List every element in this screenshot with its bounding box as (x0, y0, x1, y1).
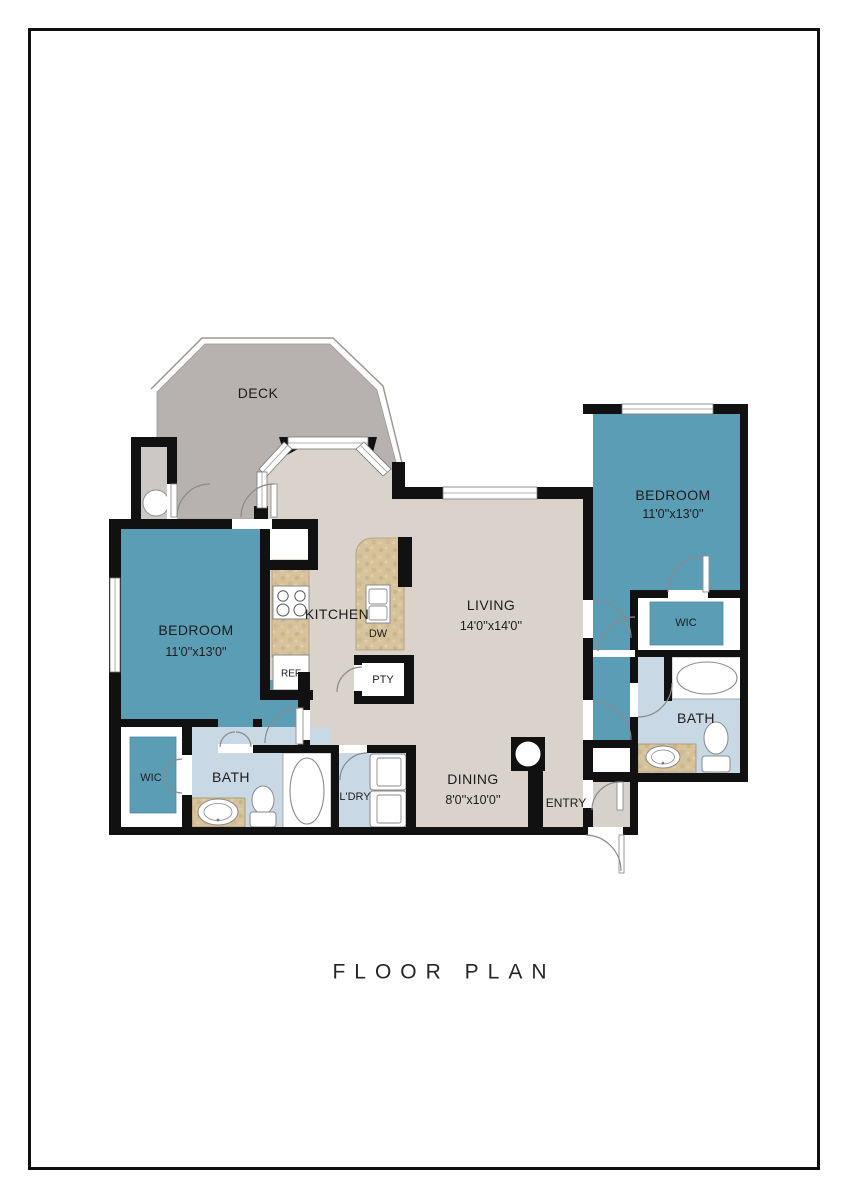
door-arc-entry-exterior (586, 835, 621, 871)
floor-plan-drawing: DECK BEDROOM 11'0''x13'0'' KITCHEN REF D… (0, 0, 848, 1200)
window-living-top (443, 487, 537, 499)
bedroom-left-dims: 11'0''x13'0'' (165, 645, 226, 659)
column-icon (516, 742, 541, 767)
bath-right-label: BATH (677, 710, 715, 726)
sink-left-icon (198, 799, 238, 825)
toilet-left-icon (250, 786, 276, 827)
living-label: LIVING (467, 597, 515, 613)
floor-plan-page: DECK BEDROOM 11'0''x13'0'' KITCHEN REF D… (0, 0, 848, 1200)
wall-left-exterior (109, 519, 121, 835)
wic-left-label: WIC (140, 772, 161, 784)
page-title: FLOOR PLAN (332, 961, 555, 984)
dw-label: DW (369, 628, 388, 640)
toilet-right-icon (702, 722, 730, 772)
ref-label: REF (281, 669, 301, 680)
door-leaf (271, 484, 277, 517)
bedroom-right-label: BEDROOM (635, 487, 710, 503)
laundry-label: L'DRY (339, 791, 371, 803)
water-heater-icon (143, 490, 169, 516)
sink-right-icon (646, 746, 680, 768)
pty-label: PTY (372, 674, 394, 686)
bathtub-right-icon (677, 662, 737, 694)
door-leaf (703, 556, 709, 592)
window-bedroom2-top (622, 404, 713, 414)
bath-left-label: BATH (212, 769, 250, 785)
window-bay-top (288, 437, 368, 449)
window-bay-left-side (257, 472, 267, 508)
dining-label: DINING (447, 771, 498, 787)
entry-closet-floor (593, 782, 630, 827)
door-leaf (171, 484, 177, 517)
deck-label: DECK (238, 385, 279, 401)
wic-right-label: WIC (675, 617, 696, 629)
door-leaf (619, 835, 624, 873)
entry-label: ENTRY (546, 796, 586, 810)
linen-closet-floor (593, 748, 630, 772)
washer-dryer-icon (370, 754, 406, 827)
bedroom-right-dims: 11'0''x13'0'' (642, 507, 703, 521)
dining-dims: 8'0''x10'0'' (445, 793, 500, 807)
stove-icon (273, 586, 309, 619)
bathtub-left-icon (290, 758, 324, 824)
window-bedroom1-left (110, 578, 120, 672)
kitchen-label: KITCHEN (305, 606, 369, 622)
door-leaf (296, 708, 303, 744)
living-dims: 14'0''x14'0'' (460, 619, 522, 633)
door-leaf (617, 782, 623, 810)
kitchen-closet (270, 529, 308, 560)
wall-bedroom1-kitchen (260, 519, 270, 695)
kitchen-sink-icon (366, 585, 390, 623)
bedroom-left-label: BEDROOM (158, 622, 233, 638)
